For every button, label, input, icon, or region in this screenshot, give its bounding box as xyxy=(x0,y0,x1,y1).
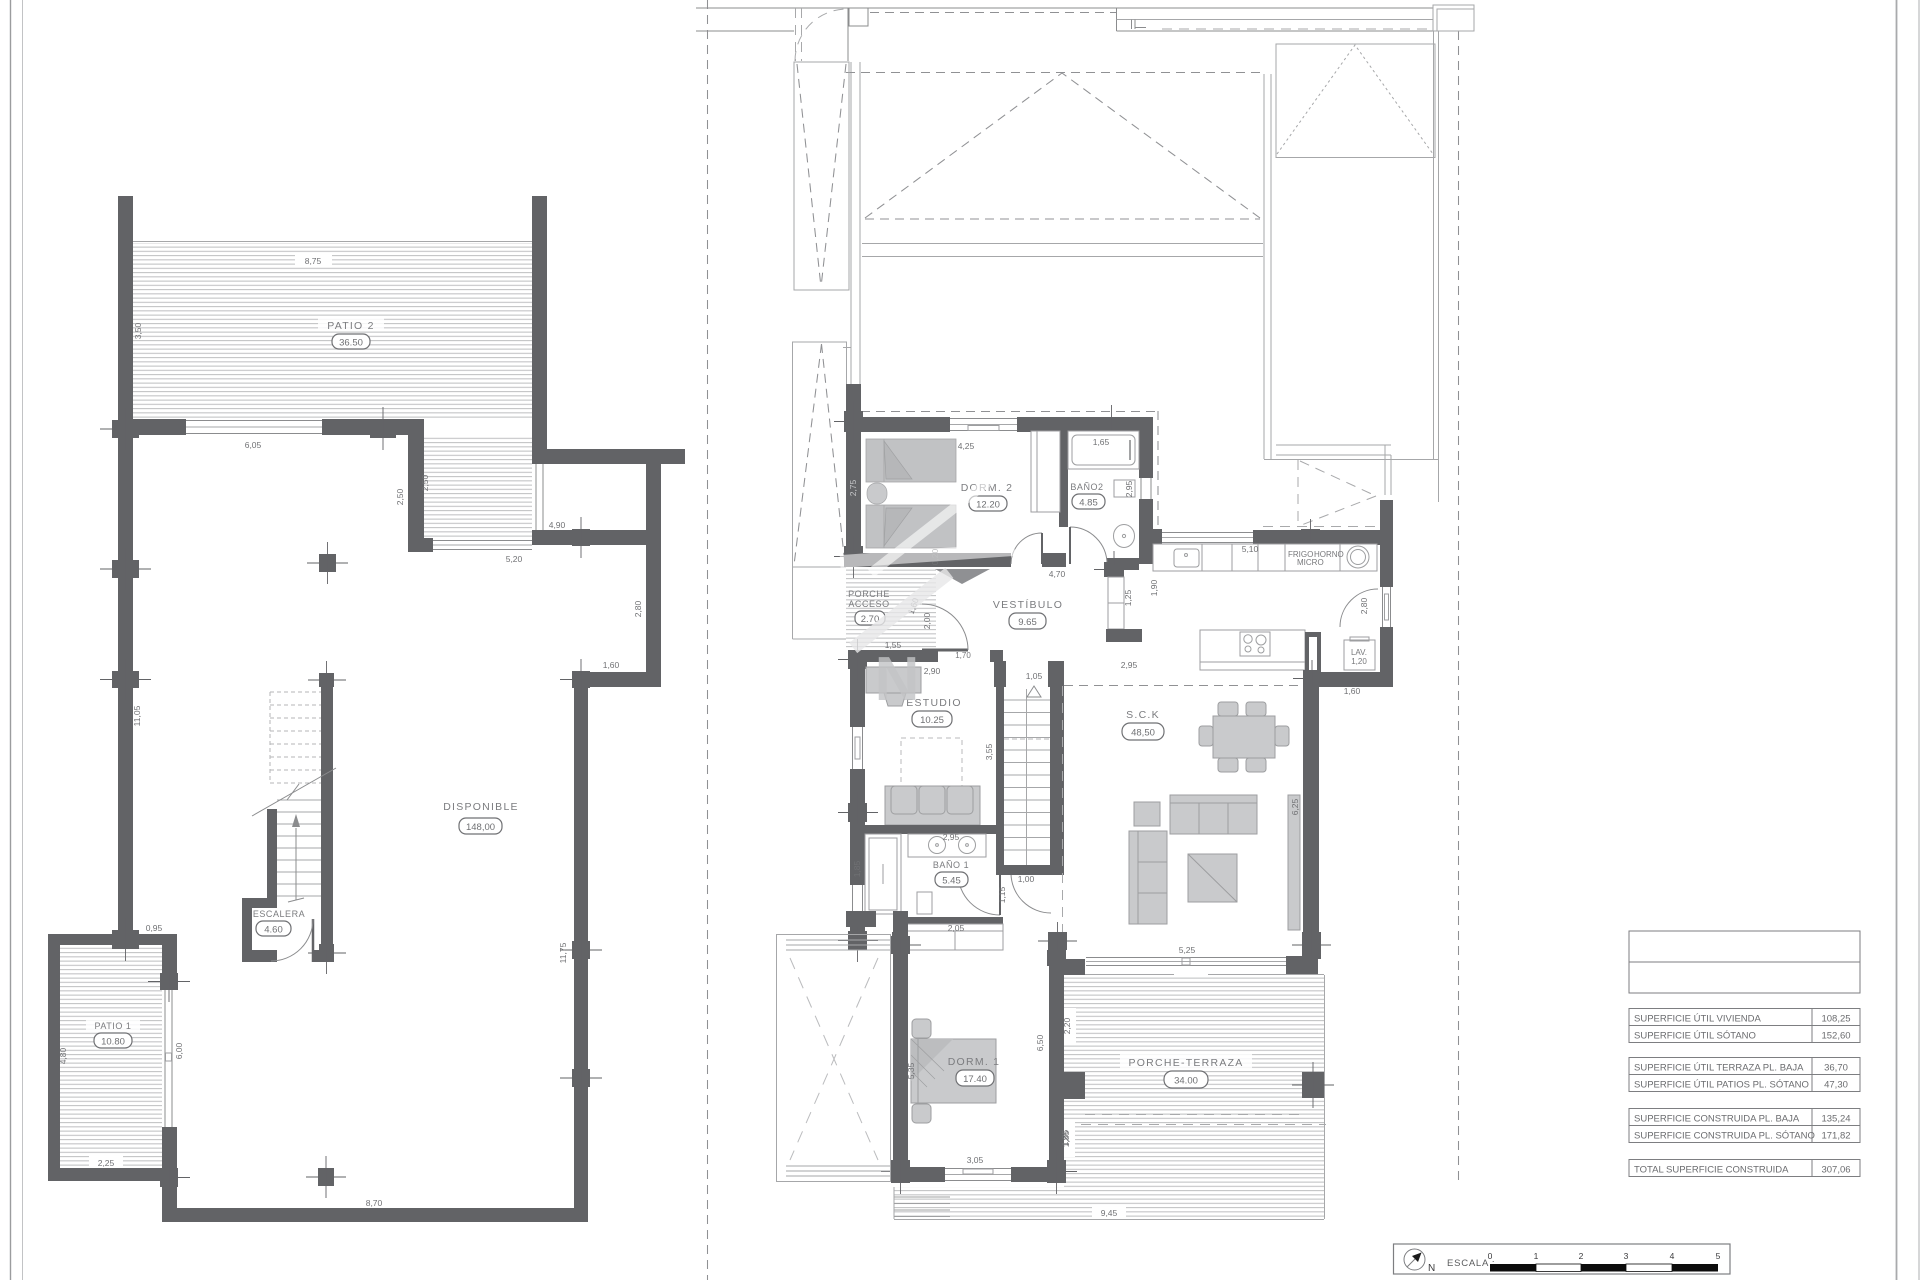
svg-text:1,20: 1,20 xyxy=(1351,657,1367,666)
svg-text:1,85: 1,85 xyxy=(852,860,862,877)
svg-text:1,15: 1,15 xyxy=(997,886,1007,903)
svg-text:148,00: 148,00 xyxy=(466,822,495,833)
svg-text:47,30: 47,30 xyxy=(1824,1080,1848,1091)
svg-text:1,60: 1,60 xyxy=(603,660,620,670)
svg-text:2,90: 2,90 xyxy=(924,666,941,676)
svg-text:PATIO 1: PATIO 1 xyxy=(95,1021,132,1031)
svg-text:17.40: 17.40 xyxy=(963,1074,987,1085)
svg-text:DORM. 1: DORM. 1 xyxy=(948,1056,1001,1068)
svg-text:4.85: 4.85 xyxy=(1079,498,1098,509)
svg-text:VESTÍBULO: VESTÍBULO xyxy=(993,598,1063,611)
svg-text:TOTAL SUPERFICIE CONSTRUIDA: TOTAL SUPERFICIE CONSTRUIDA xyxy=(1634,1165,1789,1176)
svg-text:2,95: 2,95 xyxy=(1124,480,1134,497)
svg-text:4,80: 4,80 xyxy=(58,1047,68,1064)
svg-text:5,25: 5,25 xyxy=(1179,945,1196,955)
svg-text:1,70: 1,70 xyxy=(955,651,971,660)
svg-text:2,95: 2,95 xyxy=(943,832,960,842)
svg-text:5,35: 5,35 xyxy=(906,1062,916,1079)
svg-text:PATIO 2: PATIO 2 xyxy=(327,320,375,332)
svg-text:10.25: 10.25 xyxy=(920,715,944,726)
svg-text:2,80: 2,80 xyxy=(633,600,643,617)
svg-text:1,60: 1,60 xyxy=(1344,686,1361,696)
svg-text:1,65: 1,65 xyxy=(1093,437,1110,447)
svg-text:4,25: 4,25 xyxy=(958,441,975,451)
svg-text:6,05: 6,05 xyxy=(245,440,262,450)
svg-text:N: N xyxy=(875,645,920,714)
svg-text:2: 2 xyxy=(1579,1251,1584,1261)
svg-text:2,80: 2,80 xyxy=(1359,597,1369,614)
svg-text:SUPERFICIE CONSTRUIDA PL. BAJA: SUPERFICIE CONSTRUIDA PL. BAJA xyxy=(1634,1114,1800,1125)
svg-text:11,75: 11,75 xyxy=(558,942,568,963)
svg-text:BAÑO 1: BAÑO 1 xyxy=(933,860,969,870)
svg-text:2,05: 2,05 xyxy=(948,923,965,933)
svg-text:2,00: 2,00 xyxy=(922,612,932,629)
svg-text:135,24: 135,24 xyxy=(1821,1114,1850,1125)
svg-text:SUPERFICIE ÚTIL TERRAZA PL. BA: SUPERFICIE ÚTIL TERRAZA PL. BAJA xyxy=(1634,1063,1804,1074)
svg-text:SUPERFICIE ÚTIL PATIOS PL. SÓT: SUPERFICIE ÚTIL PATIOS PL. SÓTANO xyxy=(1634,1080,1809,1091)
svg-text:PORCHE-TERRAZA: PORCHE-TERRAZA xyxy=(1128,1057,1243,1069)
svg-text:2,75: 2,75 xyxy=(848,479,858,496)
svg-text:307,06: 307,06 xyxy=(1821,1165,1850,1176)
svg-text:1,00: 1,00 xyxy=(1018,874,1035,884)
svg-text:8,75: 8,75 xyxy=(305,256,322,266)
svg-text:3: 3 xyxy=(1624,1251,1629,1261)
svg-text:0: 0 xyxy=(1488,1251,1493,1261)
svg-text:6,50: 6,50 xyxy=(1035,1034,1045,1051)
svg-text:DISPONIBLE: DISPONIBLE xyxy=(443,801,519,813)
svg-text:3,05: 3,05 xyxy=(967,1155,984,1165)
svg-text:2,50: 2,50 xyxy=(420,474,430,491)
svg-text:S.C.K: S.C.K xyxy=(1126,709,1160,721)
svg-text:4.60: 4.60 xyxy=(264,925,283,936)
svg-text:SUPERFICIE CONSTRUIDA PL. SÓTA: SUPERFICIE CONSTRUIDA PL. SÓTANO xyxy=(1634,1131,1815,1142)
svg-text:3,50: 3,50 xyxy=(133,322,143,339)
svg-text:2,25: 2,25 xyxy=(98,1158,115,1168)
svg-text:36.50: 36.50 xyxy=(339,338,363,349)
svg-text:6,00: 6,00 xyxy=(174,1042,184,1059)
svg-text:N: N xyxy=(1428,1263,1435,1274)
svg-text:2,50: 2,50 xyxy=(395,488,405,505)
svg-text:4,90: 4,90 xyxy=(549,520,566,530)
svg-text:3,55: 3,55 xyxy=(984,743,994,760)
svg-text:SUPERFICIE ÚTIL SÓTANO: SUPERFICIE ÚTIL SÓTANO xyxy=(1634,1031,1756,1042)
svg-text:0,95: 0,95 xyxy=(146,923,163,933)
svg-text:12.20: 12.20 xyxy=(976,500,1000,511)
svg-text:108,25: 108,25 xyxy=(1821,1014,1850,1025)
svg-text:1,90: 1,90 xyxy=(1149,579,1159,596)
svg-text:5,20: 5,20 xyxy=(506,554,523,564)
svg-text:5: 5 xyxy=(1716,1251,1721,1261)
svg-text:34.00: 34.00 xyxy=(1174,1076,1198,1087)
svg-text:8,70: 8,70 xyxy=(366,1198,383,1208)
svg-text:36,70: 36,70 xyxy=(1824,1063,1848,1074)
svg-text:4,70: 4,70 xyxy=(1049,569,1066,579)
svg-text:ACCESO: ACCESO xyxy=(848,599,889,609)
svg-text:5.45: 5.45 xyxy=(942,876,961,887)
svg-text:2,95: 2,95 xyxy=(1121,660,1138,670)
svg-text:1: 1 xyxy=(1534,1251,1539,1261)
svg-text:ESCALERA: ESCALERA xyxy=(253,909,305,919)
svg-text:4: 4 xyxy=(1670,1251,1675,1261)
svg-text:152,60: 152,60 xyxy=(1821,1031,1850,1042)
svg-text:6,25: 6,25 xyxy=(1290,798,1300,815)
svg-text:SUPERFICIE ÚTIL VIVIENDA: SUPERFICIE ÚTIL VIVIENDA xyxy=(1634,1014,1762,1025)
svg-text:48,50: 48,50 xyxy=(1131,728,1155,739)
svg-text:LAV.: LAV. xyxy=(1351,648,1367,657)
svg-text:MICRO: MICRO xyxy=(1297,558,1324,567)
svg-text:11,05: 11,05 xyxy=(132,705,142,726)
svg-text:BAÑO2: BAÑO2 xyxy=(1070,482,1103,492)
svg-text:1,85: 1,85 xyxy=(1060,1129,1070,1146)
svg-text:10.80: 10.80 xyxy=(101,1037,125,1048)
svg-text:5,10: 5,10 xyxy=(1242,544,1259,554)
svg-text:9.65: 9.65 xyxy=(1018,617,1037,628)
svg-text:1,05: 1,05 xyxy=(1026,671,1043,681)
svg-text:171,82: 171,82 xyxy=(1821,1131,1850,1142)
svg-text:PORCHE: PORCHE xyxy=(848,589,890,599)
svg-text:9,45: 9,45 xyxy=(1101,1208,1118,1218)
